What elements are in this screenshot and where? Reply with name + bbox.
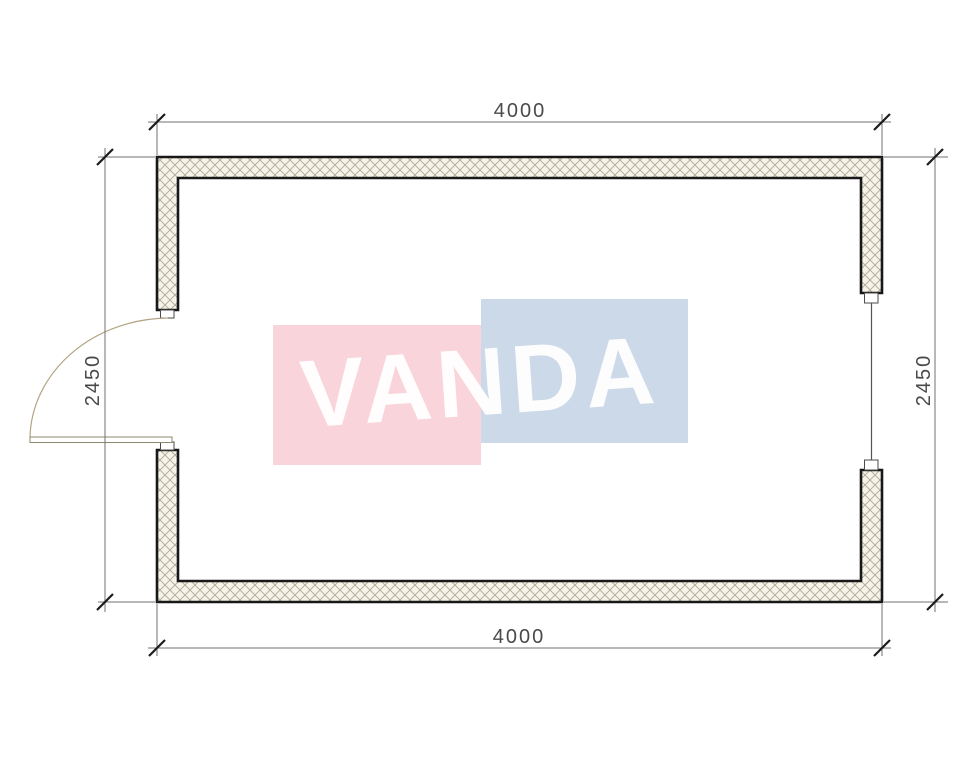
window-jamb-cap-top	[865, 293, 879, 303]
wall-bottom-and-lower-stubs	[157, 450, 882, 602]
door-leaf	[30, 437, 172, 443]
dimension-bottom-label: 4000	[493, 626, 546, 648]
door-jamb-cap-bottom	[161, 442, 175, 450]
dimension-right-label: 2450	[913, 354, 935, 407]
wall-top-and-upper-stubs	[157, 157, 882, 310]
dimension-top-label: 4000	[494, 100, 547, 122]
floor-plan-canvas: VANDA 4000	[0, 0, 960, 768]
door-jamb-cap-top	[161, 310, 175, 318]
dimension-left-label: 2450	[82, 354, 104, 407]
floor-plan-svg: 4000 4000 2450	[0, 0, 960, 768]
dimension-left	[98, 148, 155, 612]
window-jamb-cap-bottom	[865, 460, 879, 470]
